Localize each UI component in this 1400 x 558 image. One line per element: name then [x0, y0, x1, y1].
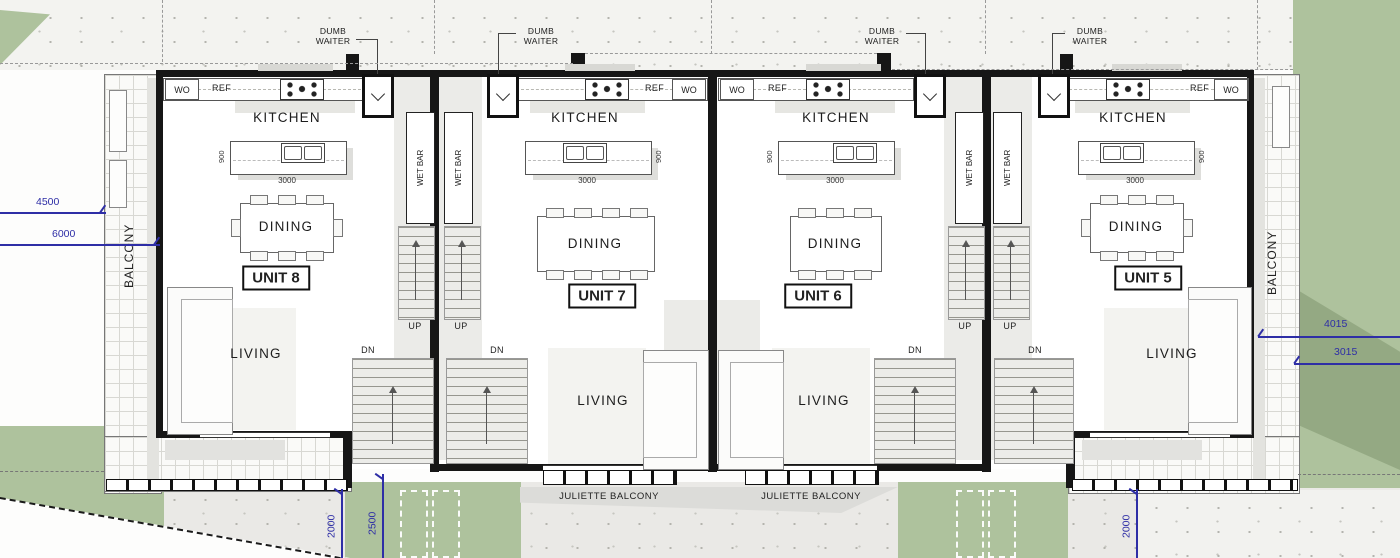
boundary-dash-h2 — [585, 53, 877, 54]
terrace-rail-unit5 — [1072, 479, 1298, 491]
unit7-stair-dn-arrow — [486, 388, 487, 444]
dimension-3015-line — [1294, 363, 1400, 365]
dw-leader-3v — [925, 33, 926, 74]
unit5-dn-label: DN — [1028, 345, 1042, 355]
unit7-name-box: UNIT 7 — [568, 284, 636, 309]
unit6-sink-icon — [833, 143, 877, 163]
unit6-dumb-waiter-shaft — [914, 74, 946, 118]
dimension-4015-line — [1258, 336, 1400, 338]
unit7-dn-label: DN — [490, 345, 504, 355]
chair — [1100, 251, 1118, 261]
unit6-wo-label: WO — [729, 85, 745, 95]
unit6-wall-oven: WO — [720, 79, 754, 100]
chair — [574, 208, 592, 218]
chair — [546, 270, 564, 280]
chair — [798, 208, 816, 218]
unit8-up-label: UP — [408, 321, 421, 331]
chair — [602, 208, 620, 218]
chair — [231, 219, 241, 237]
dw-leader-4h — [1052, 33, 1065, 34]
unit7-wall-oven: WO — [672, 79, 706, 100]
unit8-stair-dn-arrow — [392, 388, 393, 444]
unit5-sink-icon — [1100, 143, 1144, 163]
unit6-dw-chevron-icon — [923, 87, 937, 101]
chair — [306, 251, 324, 261]
chair — [1156, 251, 1174, 261]
unit5-kitchen-label: KITCHEN — [1099, 110, 1167, 125]
dumb-waiter-callout-2: DUMB WAITER — [514, 26, 568, 46]
concrete-bottom-right — [1137, 490, 1400, 558]
floor-plan: WO REF REF WO WO REF REF WO 900 3000 900… — [0, 0, 1400, 558]
unit7-wet-bar: WET BAR — [444, 112, 473, 224]
unit5-wet-bar-label: WET BAR — [1003, 150, 1012, 186]
unit8-island-depth: 900 — [215, 141, 228, 173]
entry-path-65-b — [988, 490, 1016, 558]
unit7-island-depth: 900 — [652, 141, 665, 173]
unit7-dining-label: DINING — [568, 236, 622, 251]
boundary-dash-v5 — [1257, 0, 1258, 70]
unit5-wet-bar: WET BAR — [993, 112, 1022, 224]
unit5-dumb-waiter-shaft — [1038, 74, 1070, 118]
chair — [854, 208, 872, 218]
unit7-ref-label: REF — [645, 83, 664, 93]
boundary-dash-v4 — [985, 0, 986, 54]
unit6-wet-bar: WET BAR — [955, 112, 984, 224]
balcony-left-label: BALCONY — [120, 208, 138, 303]
sill-unit8 — [258, 64, 333, 71]
unit5-stair-up-arrow — [1010, 242, 1011, 300]
unit7-dumb-waiter-shaft — [487, 74, 519, 118]
boundary-dash-h1 — [0, 63, 573, 64]
chair — [574, 270, 592, 280]
sill-unit6 — [806, 64, 881, 71]
unit8-wet-bar-label: WET BAR — [416, 150, 425, 186]
unit8-island-width: 3000 — [278, 176, 296, 185]
unit5-sofa-seat — [1188, 299, 1238, 423]
unit7-island-width: 3000 — [578, 176, 596, 185]
centerline-bottom-right — [1298, 474, 1400, 475]
chair — [630, 208, 648, 218]
unit5-dw-chevron-icon — [1047, 87, 1061, 101]
unit7-stove-icon — [585, 79, 629, 100]
chair — [306, 195, 324, 205]
unit6-name-box: UNIT 6 — [784, 284, 852, 309]
chair — [826, 270, 844, 280]
unit7-wo-label: WO — [681, 85, 697, 95]
unit5-stair-dn-arrow — [1033, 388, 1034, 444]
dw-leader-2v — [498, 33, 499, 74]
dumb-waiter-callout-1: DUMB WAITER — [306, 26, 360, 46]
chair — [333, 219, 343, 237]
entry-path-87-b — [432, 490, 460, 558]
unit5-living-label: LIVING — [1146, 346, 1197, 361]
balcony-left-furniture2 — [109, 160, 127, 208]
dw-leader-3h — [906, 33, 926, 34]
chair — [630, 270, 648, 280]
unit6-up-label: UP — [958, 321, 971, 331]
dimension-3015: 3015 — [1334, 346, 1357, 358]
unit5-stove-icon — [1106, 79, 1150, 100]
juliette-rail-unit6 — [745, 470, 879, 485]
chair — [854, 270, 872, 280]
unit6-living-label: LIVING — [798, 393, 849, 408]
unit8-dw-chevron-icon — [371, 87, 385, 101]
dumb-waiter-callout-3: DUMB WAITER — [855, 26, 909, 46]
unit5-dining-label: DINING — [1109, 219, 1163, 234]
boundary-dash-v3 — [711, 0, 712, 54]
centerline-bottom-left — [0, 471, 104, 472]
dw-leader-1v — [377, 39, 378, 74]
balcony-right-furniture — [1272, 86, 1290, 148]
unit8-stair-up-arrow — [415, 242, 416, 300]
unit8-sofa-seat — [181, 299, 233, 423]
chair — [798, 270, 816, 280]
chair — [602, 270, 620, 280]
unit7-wet-bar-label: WET BAR — [454, 150, 463, 186]
unit8-kitchen-label: KITCHEN — [253, 110, 321, 125]
unit6-stove-icon — [806, 79, 850, 100]
unit8-dumb-waiter-shaft — [362, 74, 394, 118]
terrace-unit5-shadow — [1082, 440, 1202, 460]
balcony-left-furniture — [109, 90, 127, 152]
dimension-4500: 4500 — [36, 196, 59, 208]
unit8-ref-label: REF — [212, 83, 231, 93]
unit7-stair-up-arrow — [461, 242, 462, 300]
unit5-name-box: UNIT 5 — [1114, 266, 1182, 291]
dw-leader-1h — [356, 39, 378, 40]
unit7-up-label: UP — [454, 321, 467, 331]
chair — [1128, 251, 1146, 261]
unit8-dining-label: DINING — [259, 219, 313, 234]
unit7-kitchen-label: KITCHEN — [551, 110, 619, 125]
boundary-dash-v2 — [434, 0, 435, 54]
chair — [546, 208, 564, 218]
chair — [1081, 219, 1091, 237]
chair — [278, 251, 296, 261]
dimension-6000: 6000 — [52, 228, 75, 240]
dimension-6000-line — [0, 244, 160, 246]
unit8-stove-icon — [280, 79, 324, 100]
chair — [250, 251, 268, 261]
unit6-wet-bar-label: WET BAR — [965, 150, 974, 186]
unit5-island-width: 3000 — [1126, 176, 1144, 185]
unit8-wall-oven: WO — [165, 79, 199, 100]
chair — [1100, 195, 1118, 205]
unit5-up-label: UP — [1003, 321, 1016, 331]
unit8-stair-dn — [352, 358, 434, 464]
unit7-dw-chevron-icon — [496, 87, 510, 101]
wall-top — [156, 70, 1254, 77]
unit6-island-depth: 900 — [763, 141, 776, 173]
unit8-name-box: UNIT 8 — [242, 266, 310, 291]
sill-unit7 — [565, 64, 635, 71]
unit5-wo-label: WO — [1223, 85, 1239, 95]
terrace-rail-unit8 — [106, 479, 348, 491]
chair — [1128, 195, 1146, 205]
unit6-dn-label: DN — [908, 345, 922, 355]
dimension-4015: 4015 — [1324, 318, 1347, 330]
party-wall-76 — [708, 70, 717, 472]
juliette-label-unit6: JULIETTE BALCONY — [761, 491, 861, 502]
chair — [1156, 195, 1174, 205]
terrace-unit8-shadow — [165, 440, 285, 460]
unit8-wet-bar: WET BAR — [406, 112, 435, 224]
chair — [250, 195, 268, 205]
unit8-wo-label: WO — [174, 85, 190, 95]
dw-leader-4v — [1052, 33, 1053, 74]
unit6-sofa-seat — [730, 362, 784, 458]
unit6-kitchen-label: KITCHEN — [802, 110, 870, 125]
unit5-island-depth: 900 — [1195, 141, 1208, 173]
unit8-dn-label: DN — [361, 345, 375, 355]
unit5-stair-dn — [994, 358, 1074, 464]
dimension-2000-right-line — [1136, 489, 1138, 558]
dimension-2500: 2500 — [365, 500, 380, 546]
unit6-island-width: 3000 — [826, 176, 844, 185]
entry-path-65-a — [956, 490, 984, 558]
boundary-dash-v1 — [162, 0, 163, 62]
unit7-stair-dn — [446, 358, 528, 464]
unit7-living-label: LIVING — [577, 393, 628, 408]
unit6-ref-label: REF — [768, 83, 787, 93]
unit5-ref-label: REF — [1190, 83, 1209, 93]
unit7-sink-icon — [563, 143, 607, 163]
unit6-dining-label: DINING — [808, 236, 862, 251]
unit8-sink-icon — [281, 143, 325, 163]
chair — [826, 208, 844, 218]
unit7-sofa-seat — [643, 362, 697, 458]
chair — [1183, 219, 1193, 237]
unit6-stair-dn-arrow — [914, 388, 915, 444]
dw-leader-2h — [498, 33, 516, 34]
unit5-wall-oven: WO — [1214, 79, 1248, 100]
unit8-living-label: LIVING — [230, 346, 281, 361]
dimension-2500-line — [382, 474, 384, 558]
balcony-right-label: BALCONY — [1263, 218, 1281, 308]
chair — [278, 195, 296, 205]
unit6-stair-up-arrow — [965, 242, 966, 300]
juliette-rail-unit7 — [543, 470, 677, 485]
dimension-2000-left-line — [341, 489, 343, 558]
dimension-2000-left: 2000 — [324, 503, 339, 549]
boundary-dash-h3 — [892, 69, 1293, 70]
concrete-top-strip — [0, 0, 1400, 70]
dimension-4500-line — [0, 212, 106, 214]
unit6-stair-dn — [874, 358, 956, 464]
dumb-waiter-callout-4: DUMB WAITER — [1063, 26, 1117, 46]
entry-path-87-a — [400, 490, 428, 558]
juliette-label-unit7: JULIETTE BALCONY — [559, 491, 659, 502]
dimension-2000-right: 2000 — [1119, 503, 1134, 549]
unit5-living-rug — [1104, 308, 1196, 430]
wall-left — [156, 70, 163, 438]
